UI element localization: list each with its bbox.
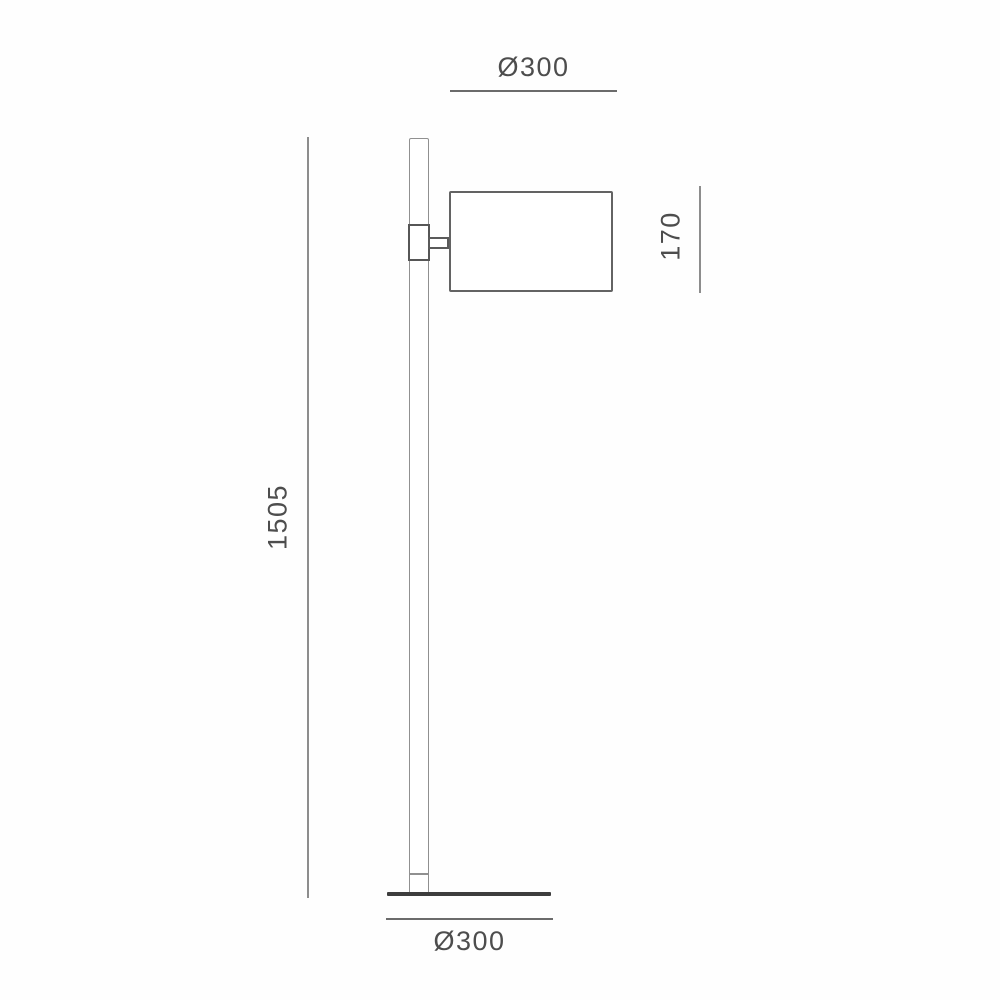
shade-mount-bracket — [408, 224, 430, 261]
shade-diameter-dimension-line — [450, 90, 617, 92]
floor-lamp-dimension-diagram: Ø300 1505 170 Ø300 — [0, 0, 1000, 1000]
pole-joint-line — [410, 873, 428, 875]
shade-arm-stub — [428, 237, 449, 249]
lamp-height-label: 1505 — [263, 484, 294, 550]
shade-diameter-label: Ø300 — [450, 52, 617, 83]
base-diameter-label: Ø300 — [386, 926, 553, 957]
lamp-shade — [449, 191, 613, 292]
shade-height-label: 170 — [656, 211, 687, 261]
base-diameter-dimension-line — [386, 918, 553, 920]
lamp-base — [387, 892, 551, 896]
shade-height-dimension-line — [699, 186, 701, 293]
lamp-height-dimension-line — [307, 137, 309, 898]
